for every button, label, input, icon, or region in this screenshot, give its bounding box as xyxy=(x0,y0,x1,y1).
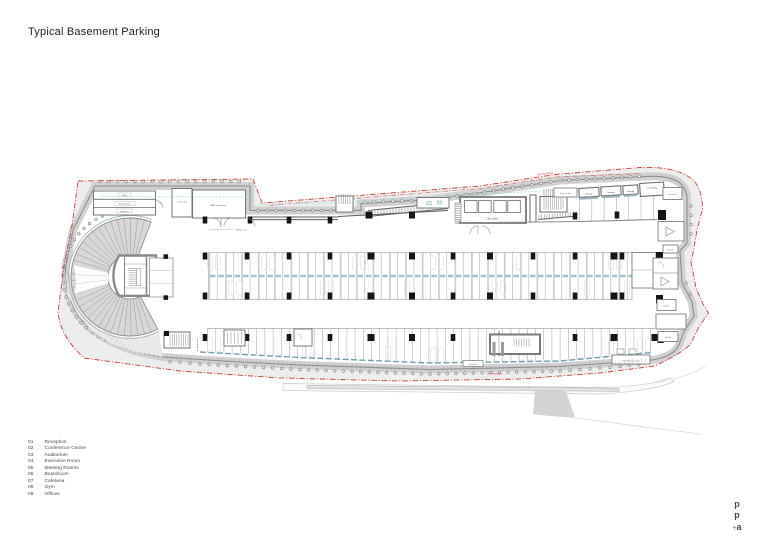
svg-text:Storage: Storage xyxy=(607,191,615,194)
svg-text:Fire Hose: Fire Hose xyxy=(469,364,477,366)
svg-text:Storage: Storage xyxy=(585,193,593,196)
svg-text:Services: Services xyxy=(120,210,129,213)
svg-text:Storage: Storage xyxy=(667,249,673,252)
svg-text:Ramp 1:12: Ramp 1:12 xyxy=(236,230,247,232)
svg-text:Machine Rm: Machine Rm xyxy=(560,193,571,195)
svg-text:Transformer: Transformer xyxy=(177,201,188,204)
svg-text:Game Rm: Game Rm xyxy=(668,194,677,196)
svg-text:Car lift lobby: Car lift lobby xyxy=(647,187,658,190)
svg-text:Storage: Storage xyxy=(663,305,669,308)
svg-text:Storage: Storage xyxy=(627,190,635,193)
svg-text:Lift Lobby: Lift Lobby xyxy=(486,217,498,221)
svg-text:Storage: Storage xyxy=(665,336,671,339)
svg-text:Mess Room: Mess Room xyxy=(119,203,131,205)
svg-text:GAS Substation: GAS Substation xyxy=(210,204,226,207)
svg-text:Site Boundary: Site Boundary xyxy=(487,373,503,376)
